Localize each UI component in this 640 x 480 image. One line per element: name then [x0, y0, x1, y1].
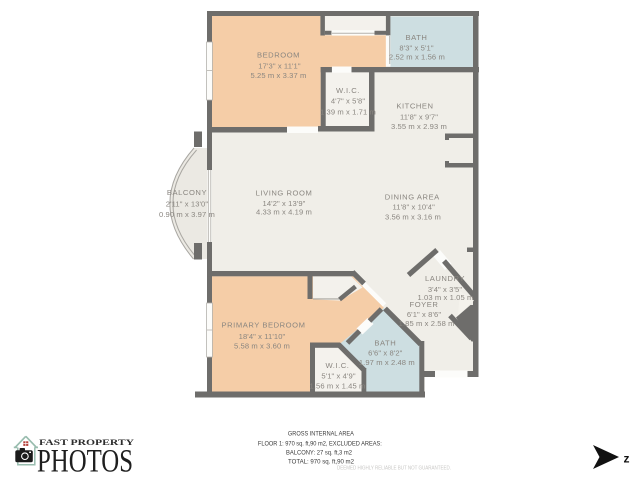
svg-text:BEDROOM: BEDROOM — [257, 51, 300, 60]
svg-text:0.90 m x 3.97 m: 0.90 m x 3.97 m — [159, 210, 215, 219]
svg-text:4.33 m x 4.19 m: 4.33 m x 4.19 m — [256, 208, 312, 217]
svg-text:TOTAL: 970 sq. ft,90 m2: TOTAL: 970 sq. ft,90 m2 — [288, 458, 354, 465]
svg-text:FLOOR 1: 970 sq. ft,90 m2, EXC: FLOOR 1: 970 sq. ft,90 m2, EXCLUDED AREA… — [258, 440, 382, 447]
svg-text:FOYER: FOYER — [410, 300, 439, 309]
svg-text:BALCONY: 27 sq. ft,3 m2: BALCONY: 27 sq. ft,3 m2 — [286, 450, 352, 457]
svg-text:BATH: BATH — [406, 33, 428, 42]
svg-text:1.97 m x 2.48 m: 1.97 m x 2.48 m — [359, 358, 415, 367]
svg-text:4'7" x 5'8": 4'7" x 5'8" — [331, 97, 366, 106]
svg-text:LAUNDRY: LAUNDRY — [425, 274, 465, 283]
svg-text:KITCHEN: KITCHEN — [396, 102, 433, 111]
svg-text:3.56 m x 3.16 m: 3.56 m x 3.16 m — [385, 212, 441, 221]
svg-text:3.55 m x 2.93 m: 3.55 m x 2.93 m — [391, 122, 447, 131]
svg-text:11'8" x 10'4": 11'8" x 10'4" — [393, 202, 436, 211]
svg-text:GROSS INTERNAL AREA: GROSS INTERNAL AREA — [288, 430, 355, 437]
svg-text:W.I.C.: W.I.C. — [336, 86, 360, 95]
svg-text:1.56 m x 1.45 m: 1.56 m x 1.45 m — [310, 381, 366, 390]
svg-text:11'8" x 9'7": 11'8" x 9'7" — [400, 112, 438, 121]
svg-text:5.25 m x 3.37 m: 5.25 m x 3.37 m — [251, 71, 307, 80]
svg-text:PRIMARY BEDROOM: PRIMARY BEDROOM — [222, 321, 306, 330]
svg-text:1.39 m x 1.71 m: 1.39 m x 1.71 m — [320, 107, 376, 116]
svg-text:2'11" x 13'0": 2'11" x 13'0" — [166, 200, 209, 209]
svg-text:5'1" x 4'9": 5'1" x 4'9" — [321, 372, 356, 381]
svg-text:6'6" x 8'2": 6'6" x 8'2" — [368, 348, 403, 357]
svg-text:DEEMED HIGHLY RELIABLE BUT NOT: DEEMED HIGHLY RELIABLE BUT NOT GUARANTEE… — [337, 466, 451, 472]
svg-text:6'1" x 8'6": 6'1" x 8'6" — [407, 310, 442, 319]
svg-text:DINING AREA: DINING AREA — [385, 193, 440, 202]
svg-text:BATH: BATH — [374, 338, 396, 347]
svg-text:1.85 m x 2.58 m: 1.85 m x 2.58 m — [399, 319, 455, 328]
svg-text:8'3" x 5'1": 8'3" x 5'1" — [399, 43, 434, 52]
svg-text:18'4" x 11'10": 18'4" x 11'10" — [239, 332, 286, 341]
svg-text:17'3" x 11'1": 17'3" x 11'1" — [258, 61, 301, 70]
svg-text:PHOTOS: PHOTOS — [37, 444, 133, 480]
svg-text:BALCONY: BALCONY — [167, 188, 207, 197]
svg-text:5.58 m x 3.60 m: 5.58 m x 3.60 m — [234, 342, 290, 351]
svg-text:W.I.C.: W.I.C. — [326, 361, 350, 370]
svg-text:2.52 m x 1.56 m: 2.52 m x 1.56 m — [389, 52, 445, 61]
svg-text:z: z — [624, 452, 630, 466]
svg-text:LIVING ROOM: LIVING ROOM — [256, 189, 313, 198]
